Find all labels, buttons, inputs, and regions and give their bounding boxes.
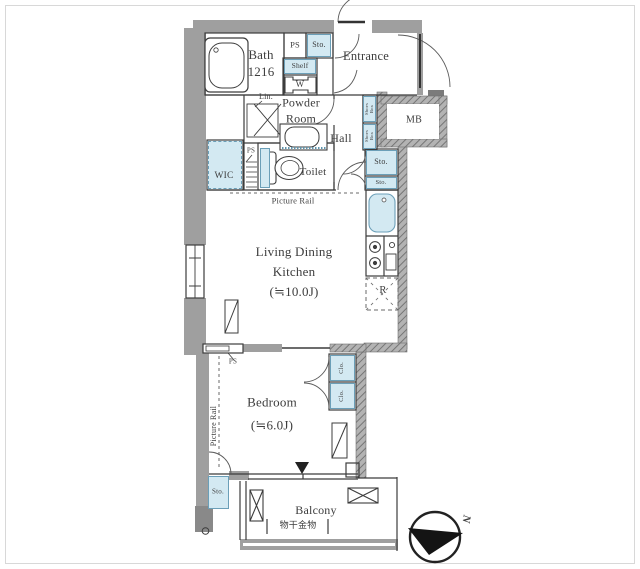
- stove-icon: [370, 242, 396, 270]
- sto-label-hall-1: Sto.: [374, 157, 387, 167]
- laundry-hardware-label: 物干金物: [280, 521, 317, 533]
- ldk-label: Living Dining Kitchen (≒10.0J): [256, 242, 333, 302]
- window-marker-triangle: [295, 462, 309, 474]
- toilet-label: Toilet: [300, 165, 327, 179]
- side-window: [186, 245, 204, 298]
- sto-label-bedroom: Sto.: [212, 487, 224, 496]
- entrance-label: Entrance: [343, 48, 389, 64]
- compass-icon: [408, 512, 463, 562]
- toilet-cabinet: [260, 148, 270, 188]
- clo-label-2: Clo.: [338, 390, 346, 402]
- shelf-label: Shelf: [292, 61, 309, 71]
- clo-label-1: Clo.: [338, 362, 346, 374]
- kitchen-sink-icon: [369, 194, 395, 232]
- shoes-box-label-2: Shoes Box: [364, 130, 374, 142]
- bath-label: Bath 1216: [248, 47, 275, 81]
- ps-label-mid: PS: [229, 357, 237, 366]
- mb-label: MB: [406, 114, 422, 127]
- refrigerator-label: R: [379, 284, 386, 298]
- lin-label: Lin.: [259, 92, 273, 102]
- bathtub-icon: [205, 38, 248, 92]
- toilet-icon: [265, 152, 303, 184]
- picture-rail-label-ldk: Picture Rail: [272, 195, 315, 206]
- picture-rail-label-bedroom: Picture Rail: [209, 406, 219, 446]
- powder-sink-icon: [280, 124, 327, 150]
- powder-room-label: Powder Room: [282, 95, 320, 126]
- balcony-label: Balcony: [295, 503, 336, 519]
- ps-label-top: PS: [290, 39, 300, 50]
- shoes-box-label-1: Shoes Box: [364, 103, 374, 115]
- floorplan-page: Bath 1216 PS Sto. Shelf W Entrance Lin. …: [0, 0, 640, 569]
- ps-label-wic: PS: [247, 146, 255, 155]
- washer-label: W: [296, 79, 305, 91]
- sto-label-hall-2: Sto.: [375, 179, 386, 187]
- bedroom-label: Bedroom (≒6.0J): [247, 391, 297, 438]
- hall-label: Hall: [330, 131, 351, 147]
- wic-label: WIC: [214, 170, 233, 182]
- sto-label-entrance: Sto.: [312, 40, 325, 50]
